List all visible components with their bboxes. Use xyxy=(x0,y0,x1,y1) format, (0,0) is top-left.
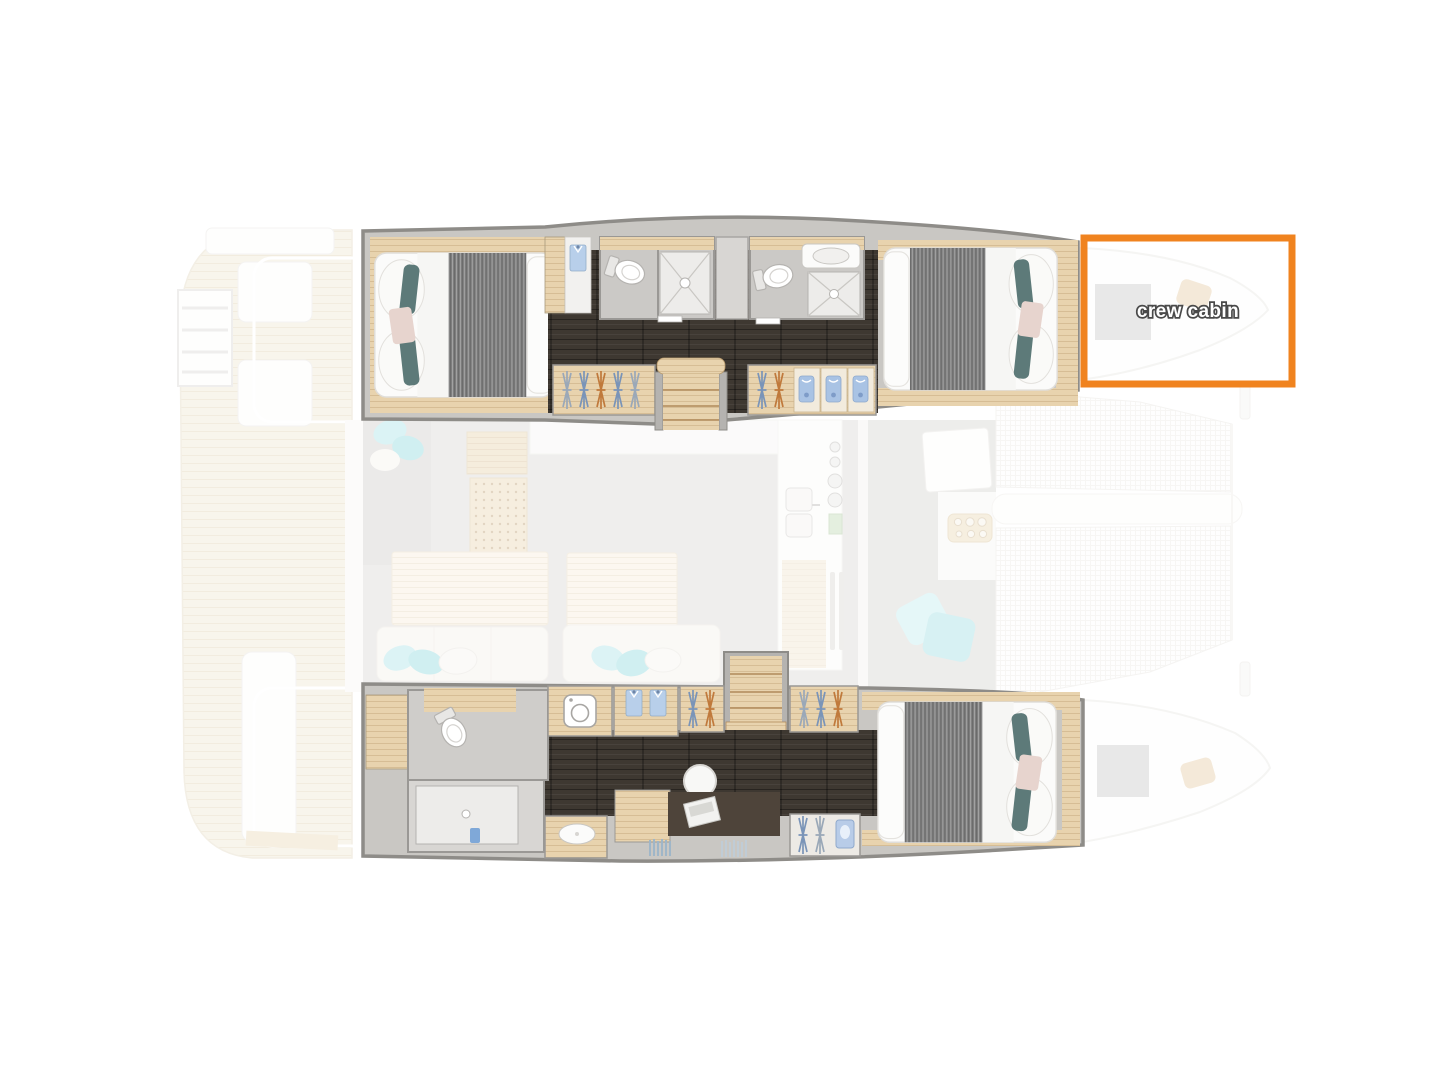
forestay-fitting xyxy=(1240,385,1250,419)
wardrobe-towel-shelves xyxy=(748,365,876,415)
towel-icon xyxy=(826,376,841,402)
mast-compartment xyxy=(716,237,748,319)
trampoline-net xyxy=(996,526,1232,700)
wardrobe-hangers xyxy=(680,686,724,732)
companionway-stairs xyxy=(724,652,788,732)
bathroom-port-forward xyxy=(750,237,864,319)
deck-bench-long xyxy=(242,652,296,842)
shirt-icon xyxy=(570,245,586,271)
double-bed xyxy=(884,248,1057,390)
panel-dial xyxy=(978,518,986,526)
shower-drain-icon xyxy=(680,278,690,288)
crew-cabin-label: crew cabin xyxy=(1137,301,1239,322)
vanity-sink xyxy=(545,816,607,858)
hanger-icon xyxy=(597,371,606,409)
hanger-icon xyxy=(706,690,715,728)
companionway-stairs xyxy=(655,358,727,430)
stove-burner xyxy=(828,493,842,507)
forestay-fitting xyxy=(1240,662,1250,696)
panel-dial xyxy=(954,518,961,525)
towel-icon xyxy=(853,376,868,402)
galley-sink xyxy=(786,488,812,511)
white-pillow xyxy=(645,648,681,672)
stove-burner xyxy=(830,457,840,467)
door-leaf xyxy=(756,318,780,324)
stove-burner xyxy=(830,442,840,452)
pegboard xyxy=(470,478,527,554)
hanger-icon xyxy=(580,371,589,409)
double-bed xyxy=(878,702,1056,842)
cabin-wood-trim xyxy=(1056,240,1078,406)
double-bed xyxy=(375,253,553,397)
hanger-icon xyxy=(758,371,767,409)
stern-step-panel xyxy=(206,228,334,254)
wardrobe-shirts xyxy=(614,686,678,736)
hanger-icon xyxy=(816,816,825,854)
panel-dial xyxy=(979,530,986,537)
hanger-icon xyxy=(817,690,826,728)
hanger-icon xyxy=(834,690,843,728)
nav-desk xyxy=(467,432,527,474)
bathroom-port-aft xyxy=(600,237,714,319)
shampoo-bottle-icon xyxy=(470,828,480,843)
door-leaf xyxy=(658,316,682,322)
deck-bench xyxy=(238,360,312,426)
hanger-icon xyxy=(800,690,809,728)
hanger-icon xyxy=(614,371,623,409)
shirt-icon xyxy=(650,690,666,716)
shower-drain-icon xyxy=(462,810,470,818)
deck-hatch xyxy=(1097,745,1149,797)
stove-burner xyxy=(828,474,842,488)
locker xyxy=(545,237,565,313)
wardrobe-hangers xyxy=(790,814,860,856)
wardrobe-hangers xyxy=(553,365,655,415)
cockpit-divider xyxy=(858,420,868,692)
cockpit-hatch xyxy=(922,428,992,492)
sink-basin xyxy=(813,248,849,264)
hanger-icon xyxy=(689,690,698,728)
dishwasher-rail xyxy=(839,572,844,650)
wardrobe-hangers xyxy=(790,686,858,732)
galley-panel xyxy=(829,514,842,534)
towel-icon xyxy=(799,376,814,402)
salon-rear-wall xyxy=(345,420,365,692)
floor-plan-svg: crew cabin xyxy=(0,0,1437,1077)
shirt-icon xyxy=(626,690,642,716)
deck-bench xyxy=(238,262,312,322)
dishwasher-rail xyxy=(830,572,835,650)
hanger-icon xyxy=(563,371,572,409)
bow-crossbeam xyxy=(992,494,1242,524)
floor-plan-figure: crew cabin xyxy=(0,0,1437,1077)
washer-knob xyxy=(569,698,573,702)
salon-table xyxy=(392,552,548,625)
white-pillow xyxy=(370,449,400,471)
washer-cabinet xyxy=(548,686,612,736)
shower-drain-icon xyxy=(830,290,839,299)
panel-dial xyxy=(967,530,974,537)
hanger-icon xyxy=(799,816,808,854)
panel-dial xyxy=(956,531,962,537)
galley-sink xyxy=(786,514,812,537)
desk-top xyxy=(668,792,780,836)
panel-dial xyxy=(966,518,974,526)
hanger-icon xyxy=(775,371,784,409)
hanger-icon xyxy=(631,371,640,409)
port-hull-interior xyxy=(363,217,1078,430)
sink-drain xyxy=(575,832,579,836)
salon-table xyxy=(567,553,677,627)
cabin-wood-trim xyxy=(1062,692,1080,846)
